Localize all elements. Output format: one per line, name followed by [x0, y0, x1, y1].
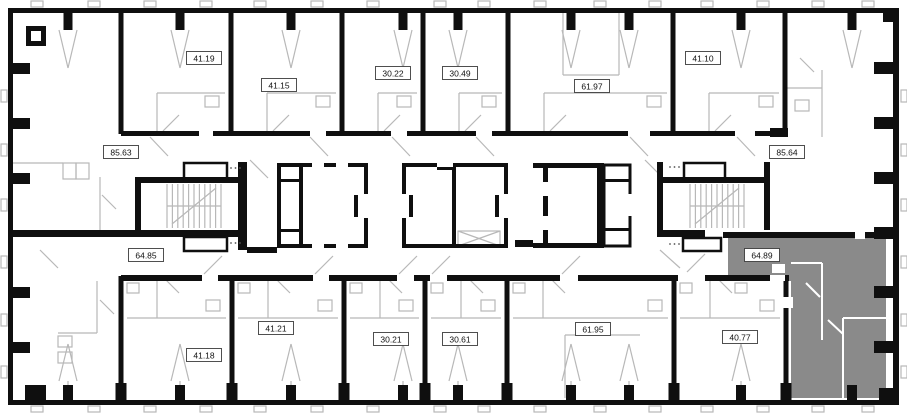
unit-area-value: 30.61 — [449, 334, 471, 344]
unit-area-label[interactable]: 64.89 — [745, 249, 780, 262]
unit-area-value: 61.97 — [581, 81, 603, 91]
unit-area-label[interactable]: 61.97 — [575, 80, 610, 93]
unit-area-value: 41.19 — [193, 53, 215, 63]
unit-area-label[interactable]: 41.19 — [187, 52, 222, 65]
unit-area-value: 40.77 — [729, 332, 751, 342]
unit-area-label[interactable]: 85.64 — [770, 146, 805, 159]
unit-area-value: 64.89 — [751, 250, 773, 260]
unit-area-label[interactable]: 64.85 — [129, 249, 164, 262]
unit-area-label[interactable]: 30.49 — [443, 67, 478, 80]
unit-area-value: 85.64 — [776, 147, 798, 157]
unit-area-label[interactable]: 30.22 — [376, 67, 411, 80]
unit-area-label[interactable]: 85.63 — [104, 146, 139, 159]
floor-plan: 41.1941.1530.2230.4961.9741.1085.6385.64… — [0, 0, 907, 413]
unit-area-value: 30.21 — [380, 334, 402, 344]
unit-area-label[interactable]: 61.95 — [576, 323, 611, 336]
floor-plan-canvas: 41.1941.1530.2230.4961.9741.1085.6385.64… — [0, 0, 907, 413]
unit-area-value: 41.18 — [193, 350, 215, 360]
unit-area-value: 41.15 — [268, 80, 290, 90]
unit-area-value: 41.21 — [265, 323, 287, 333]
unit-area-value: 85.63 — [110, 147, 132, 157]
unit-area-value: 30.49 — [449, 68, 471, 78]
unit-area-label[interactable]: 41.10 — [686, 52, 721, 65]
unit-area-value: 61.95 — [582, 324, 604, 334]
unit-area-value: 41.10 — [692, 53, 714, 63]
unit-area-value: 64.85 — [135, 250, 157, 260]
unit-area-label[interactable]: 30.21 — [374, 333, 409, 346]
unit-area-label[interactable]: 41.15 — [262, 79, 297, 92]
unit-area-label[interactable]: 30.61 — [443, 333, 478, 346]
unit-area-label[interactable]: 40.77 — [723, 331, 758, 344]
unit-area-value: 30.22 — [382, 68, 404, 78]
unit-area-label[interactable]: 41.21 — [259, 322, 294, 335]
unit-area-label[interactable]: 41.18 — [187, 349, 222, 362]
